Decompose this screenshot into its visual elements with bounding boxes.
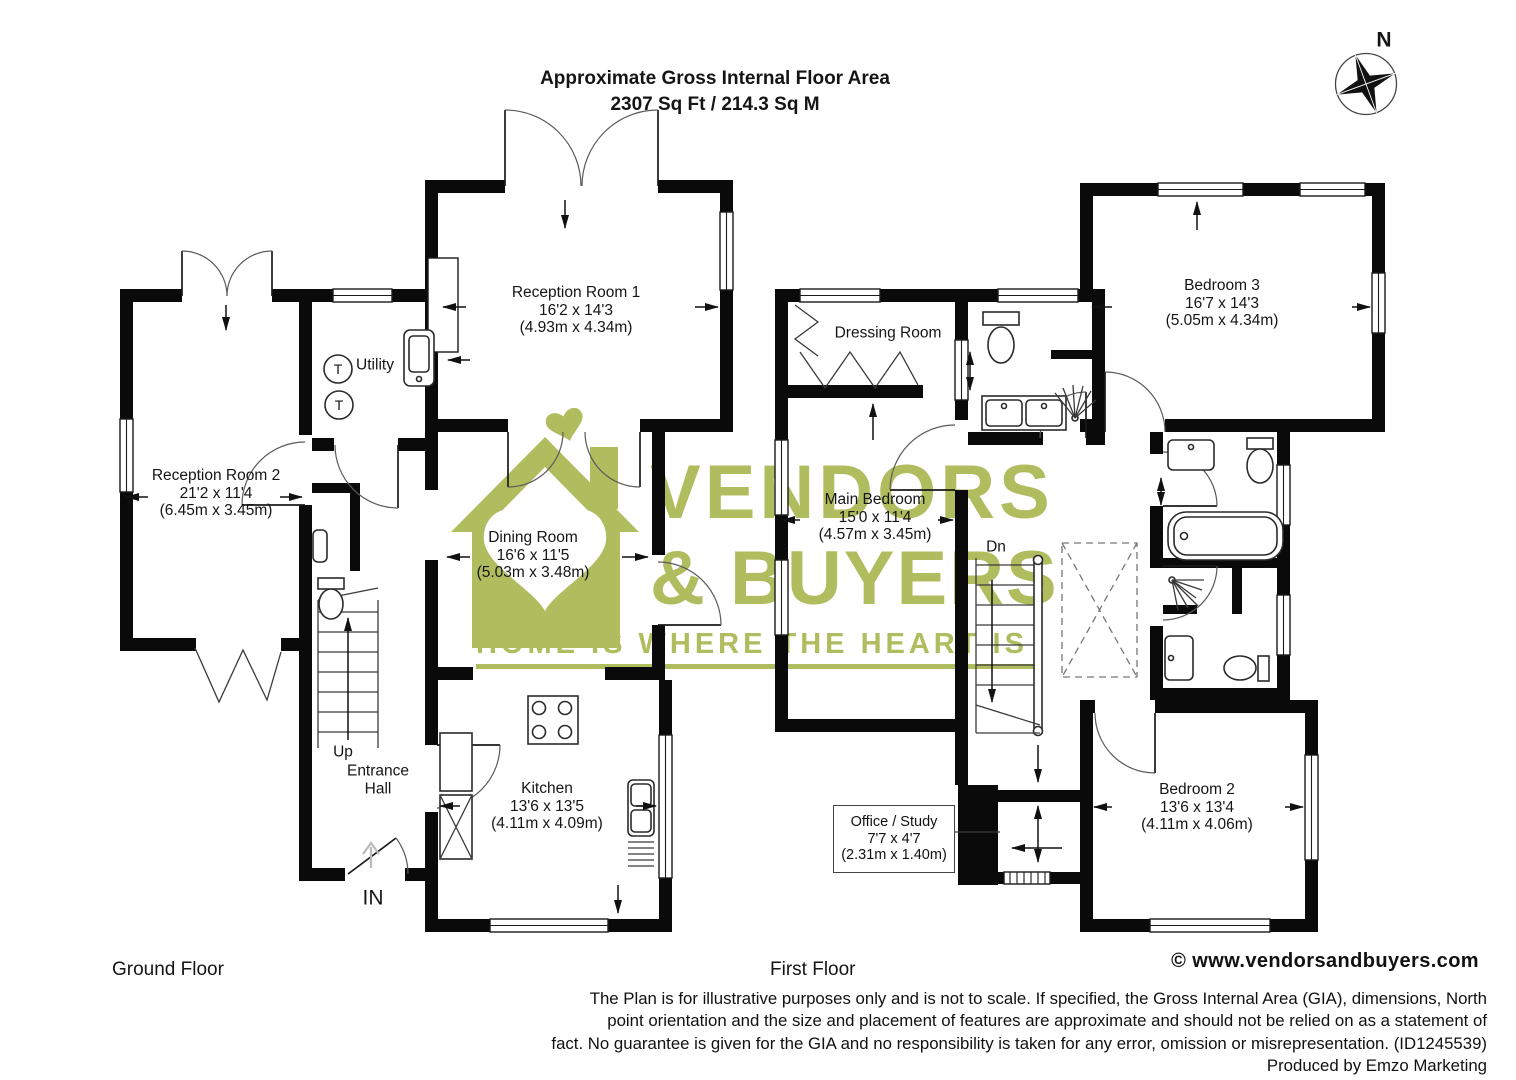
tumble-dryer-label: T: [335, 398, 344, 412]
room-label-dressing: Dressing Room: [835, 324, 942, 342]
room-label-main-bedroom: Main Bedroom 15'0 x 11'4 (4.57m x 3.45m): [819, 491, 932, 544]
disclaimer-text: The Plan is for illustrative purposes on…: [551, 988, 1487, 1077]
website-url: www.vendorsandbuyers.com: [1192, 950, 1479, 972]
tumble-dryer-label: T: [334, 362, 343, 376]
room-label-reception2: Reception Room 2 21'2 x 11'4 (6.45m x 3.…: [152, 467, 280, 520]
room-label-kitchen: Kitchen 13'6 x 13'5 (4.11m x 4.09m): [491, 780, 603, 833]
room-label-office-study: Office / Study 7'7 x 4'7 (2.31m x 1.40m): [833, 805, 955, 873]
entrance-in-label: IN: [363, 889, 384, 907]
room-label-bedroom3: Bedroom 3 16'7 x 14'3 (5.05m x 4.34m): [1166, 277, 1279, 330]
title-line-1: Approximate Gross Internal Floor Area: [415, 66, 1015, 92]
produced-by: Produced by Emzo Marketing: [551, 1055, 1487, 1077]
room-label-bedroom2: Bedroom 2 13'6 x 13'4 (4.11m x 4.06m): [1141, 781, 1253, 834]
room-label-entrance-hall: Entrance Hall: [347, 763, 409, 798]
floorplan-page: VENDORS & BUYERS HOME IS WHERE THE HEART…: [0, 0, 1516, 1080]
room-label-reception1: Reception Room 1 16'2 x 14'3 (4.93m x 4.…: [512, 284, 640, 337]
title-line-2: 2307 Sq Ft / 214.3 Sq M: [415, 92, 1015, 118]
ground-floor-title: Ground Floor: [112, 961, 224, 979]
stairs-up-label: Up: [333, 743, 353, 761]
room-label-utility: Utility: [356, 356, 394, 374]
website-link: © www.vendorsandbuyers.com: [1171, 950, 1479, 973]
room-label-dining: Dining Room 16'6 x 11'5 (5.03m x 3.48m): [477, 529, 590, 582]
page-title: Approximate Gross Internal Floor Area 23…: [415, 66, 1015, 118]
stairs-down-label: Dn: [986, 538, 1006, 556]
copyright-icon: ©: [1171, 950, 1186, 972]
first-floor-title: First Floor: [770, 961, 856, 979]
compass-north-label: N: [1376, 31, 1391, 49]
